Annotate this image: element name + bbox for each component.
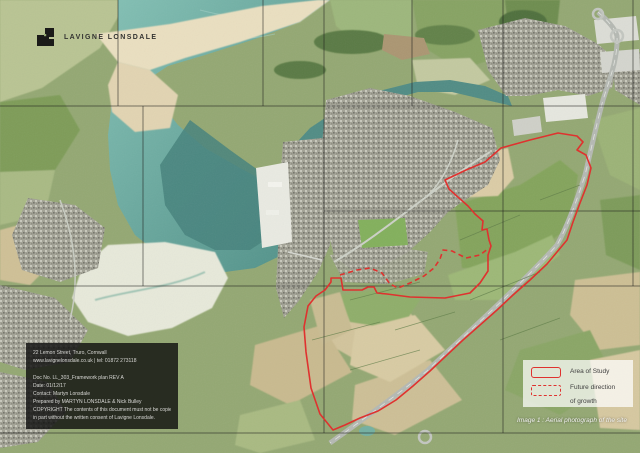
- info-box: 22 Lemon Street, Truro, Cornwall www.lav…: [26, 343, 178, 429]
- copyright-line-1: COPYRIGHT The contents of this document …: [33, 406, 171, 414]
- address-line: 22 Lemon Street, Truro, Cornwall: [33, 349, 171, 357]
- spacer: [33, 365, 171, 374]
- doc-number-line: Doc No. LL_303_Framework plan REV A: [33, 374, 171, 382]
- brand-name: LAVIGNE LONSDALE: [64, 34, 157, 41]
- prepared-by-line: Prepared by MARTYN LONSDALE & Nick Bulle…: [33, 398, 171, 406]
- lavigne-lonsdale-logo-icon: [36, 27, 58, 48]
- future-growth-label-line1: Future direction: [570, 385, 615, 392]
- image-caption: Image 1 : Aerial photograph of the site: [517, 417, 627, 424]
- legend-row-future-growth: Future direction of growth: [531, 385, 625, 405]
- date-line: Date: 01/12/17: [33, 382, 171, 390]
- future-growth-label: Future direction of growth: [570, 385, 615, 405]
- contact-line: www.lavignelonsdale.co.uk | tel: 01872 2…: [33, 357, 171, 365]
- area-of-study-swatch: [531, 367, 561, 378]
- legend: Area of Study Future direction of growth: [523, 360, 633, 407]
- legend-row-area-of-study: Area of Study: [531, 367, 625, 378]
- area-of-study-label: Area of Study: [570, 369, 609, 376]
- logo: LAVIGNE LONSDALE: [36, 27, 157, 48]
- contact-person-line: Contact: Martyn Lonsdale: [33, 390, 171, 398]
- plan-sheet: LAVIGNE LONSDALE 22 Lemon Street, Truro,…: [0, 0, 640, 453]
- future-growth-swatch: [531, 385, 561, 396]
- copyright-line-2: in part without the written consent of L…: [33, 414, 171, 422]
- future-growth-label-line2: of growth: [570, 399, 615, 406]
